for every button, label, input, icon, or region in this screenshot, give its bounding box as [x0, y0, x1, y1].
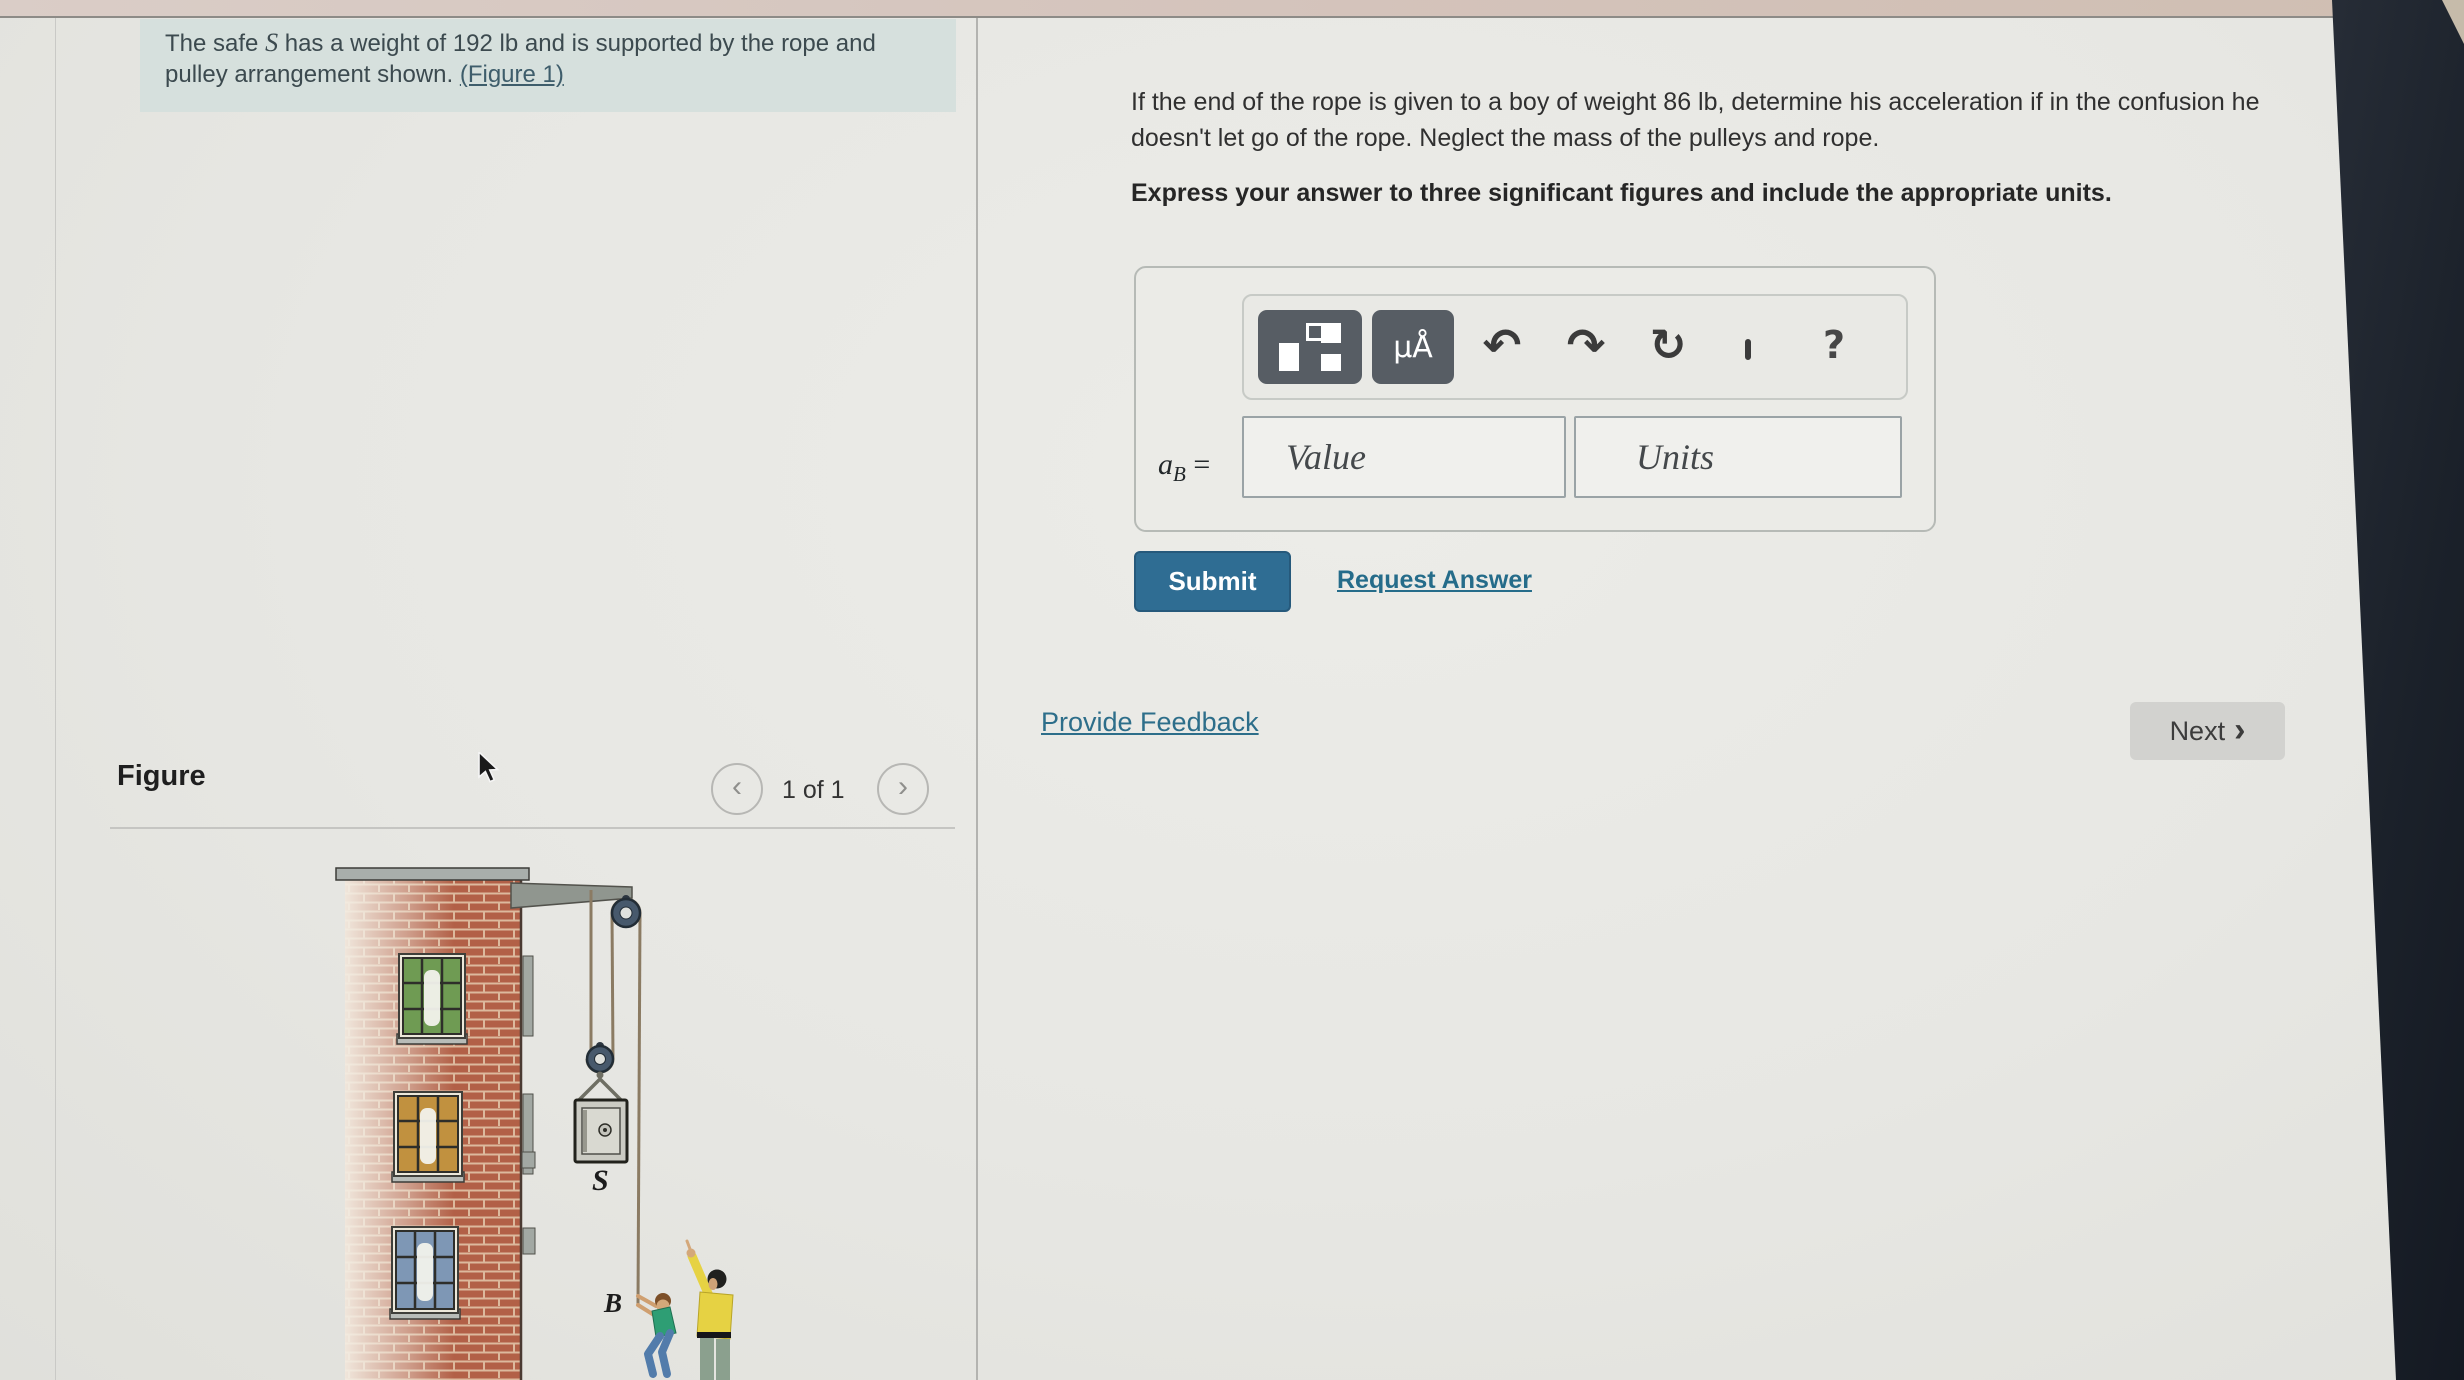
window-middle: [392, 1092, 464, 1182]
label-boy: B: [603, 1288, 622, 1318]
figure-page-indicator: 1 of 1: [782, 776, 845, 805]
next-button[interactable]: Next ›: [2130, 702, 2285, 760]
panel-divider: [976, 18, 978, 1380]
figure-divider-rule: [110, 827, 955, 829]
movable-pulley: [578, 1042, 622, 1101]
reset-icon[interactable]: ↻: [1638, 312, 1698, 378]
answer-instruction: Express your answer to three significant…: [1131, 176, 2176, 211]
units-symbols-button[interactable]: μÅ: [1372, 310, 1454, 384]
submit-button[interactable]: Submit: [1134, 551, 1291, 612]
safe-variable: S: [265, 28, 278, 57]
provide-feedback-link[interactable]: Provide Feedback: [1041, 707, 1259, 738]
variable-sub-B: B: [1173, 462, 1186, 486]
variable-a: a: [1158, 448, 1173, 481]
figure-prev-button[interactable]: ‹: [711, 763, 763, 815]
equals-sign: =: [1186, 448, 1210, 481]
equation-toolbar: μÅ ↶ ↷ ↻ ?: [1242, 294, 1908, 400]
value-input[interactable]: [1242, 416, 1566, 498]
monitor-top-bezel: [0, 0, 2464, 18]
templates-icon: [1279, 323, 1341, 371]
keyboard-shortcuts-button[interactable]: [1720, 330, 1776, 368]
mouse-cursor: [477, 752, 505, 784]
problem-statement-highlight: The safe S has a weight of 192 lb and is…: [140, 19, 956, 112]
undo-icon[interactable]: ↶: [1472, 312, 1532, 378]
figure-section-title: Figure: [117, 760, 206, 793]
help-button[interactable]: ?: [1804, 312, 1864, 378]
roof-coping: [336, 868, 529, 880]
boy-on-rope: [638, 1293, 676, 1374]
man-reaching: [687, 1241, 734, 1380]
figure-next-button[interactable]: ›: [877, 763, 929, 815]
keyboard-icon: [1745, 339, 1751, 360]
part-question-text: If the end of the rope is given to a boy…: [1131, 84, 2266, 156]
left-edge-divider: [55, 18, 56, 1380]
safe: [575, 1100, 627, 1162]
answer-box: μÅ ↶ ↷ ↻ ? aB =: [1134, 266, 1936, 532]
figure-1-link[interactable]: (Figure 1): [460, 61, 564, 88]
math-templates-button[interactable]: [1258, 310, 1362, 384]
foreground-dark-edge: [2320, 0, 2464, 1380]
screen: The safe S has a weight of 192 lb and is…: [0, 0, 2464, 1380]
answer-variable-label: aB =: [1158, 448, 1210, 487]
window-bottom: [390, 1227, 460, 1319]
redo-icon[interactable]: ↷: [1556, 312, 1616, 378]
statement-text-1: The safe: [165, 30, 265, 57]
label-safe: S: [592, 1164, 609, 1197]
problem-statement: The safe S has a weight of 192 lb and is…: [165, 27, 877, 90]
window-top: [397, 954, 467, 1044]
request-answer-link[interactable]: Request Answer: [1337, 566, 1532, 595]
rope: [587, 890, 640, 1304]
units-input[interactable]: [1574, 416, 1902, 498]
figure-illustration: S B: [296, 856, 752, 1380]
next-label: Next: [2170, 716, 2226, 747]
